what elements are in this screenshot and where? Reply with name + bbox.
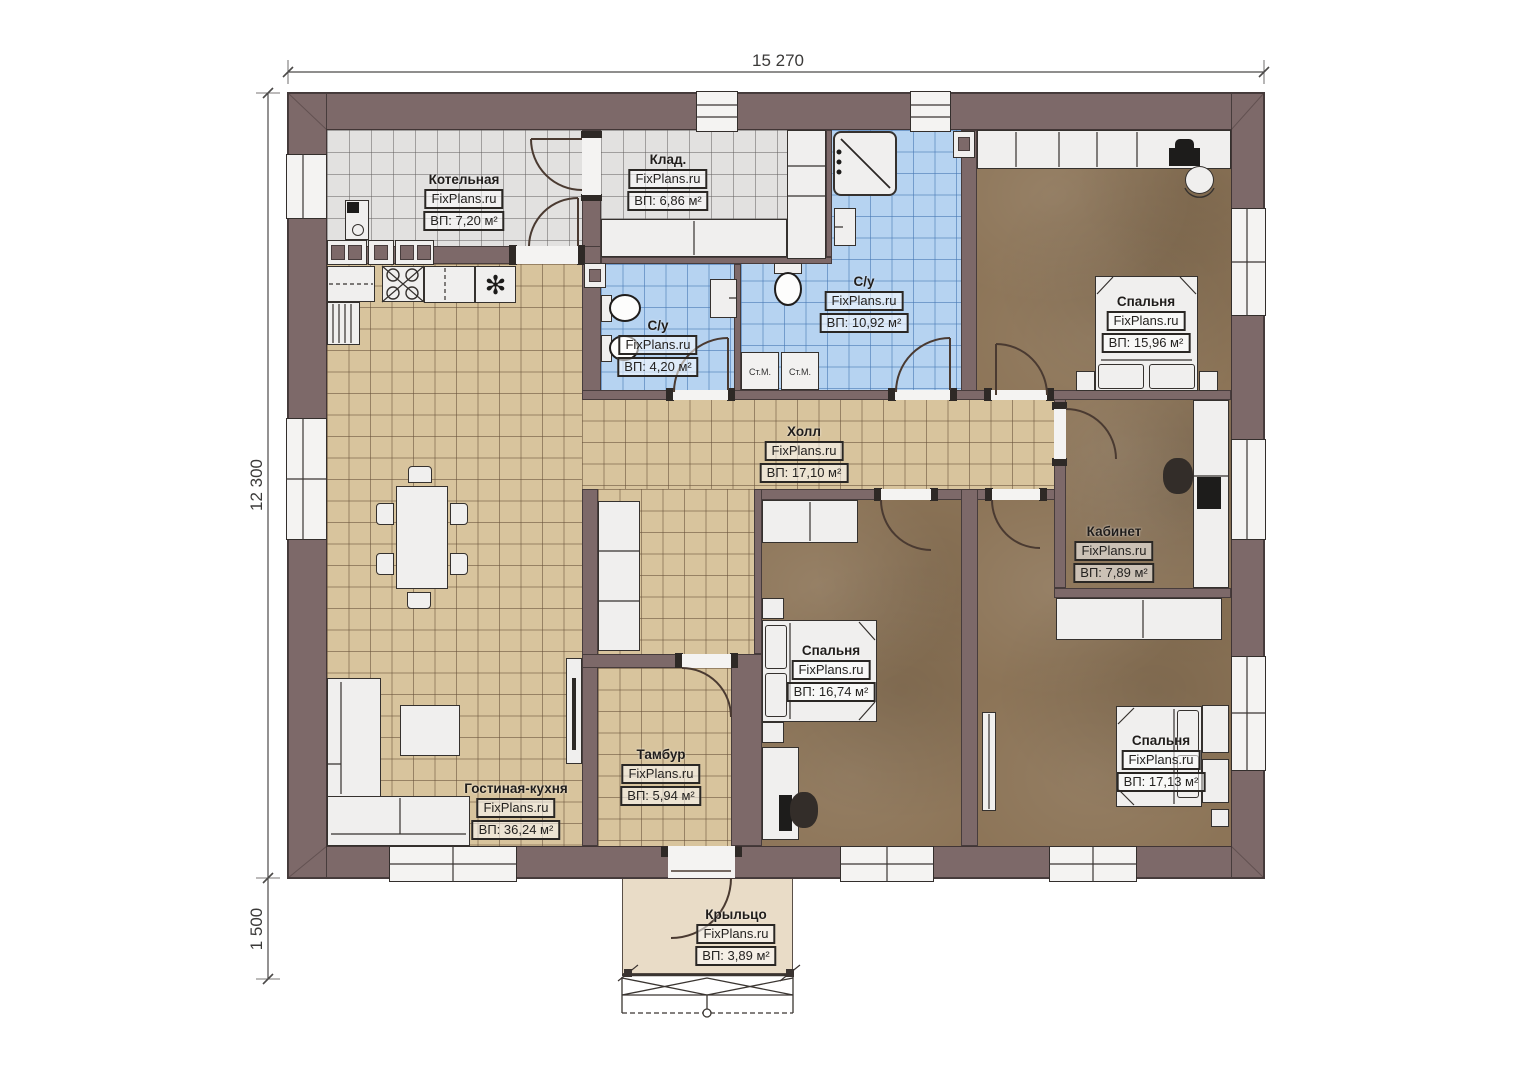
svg-text:15 270: 15 270 xyxy=(752,51,804,70)
svg-text:12 300: 12 300 xyxy=(247,459,266,511)
svg-text:1 500: 1 500 xyxy=(247,908,266,951)
